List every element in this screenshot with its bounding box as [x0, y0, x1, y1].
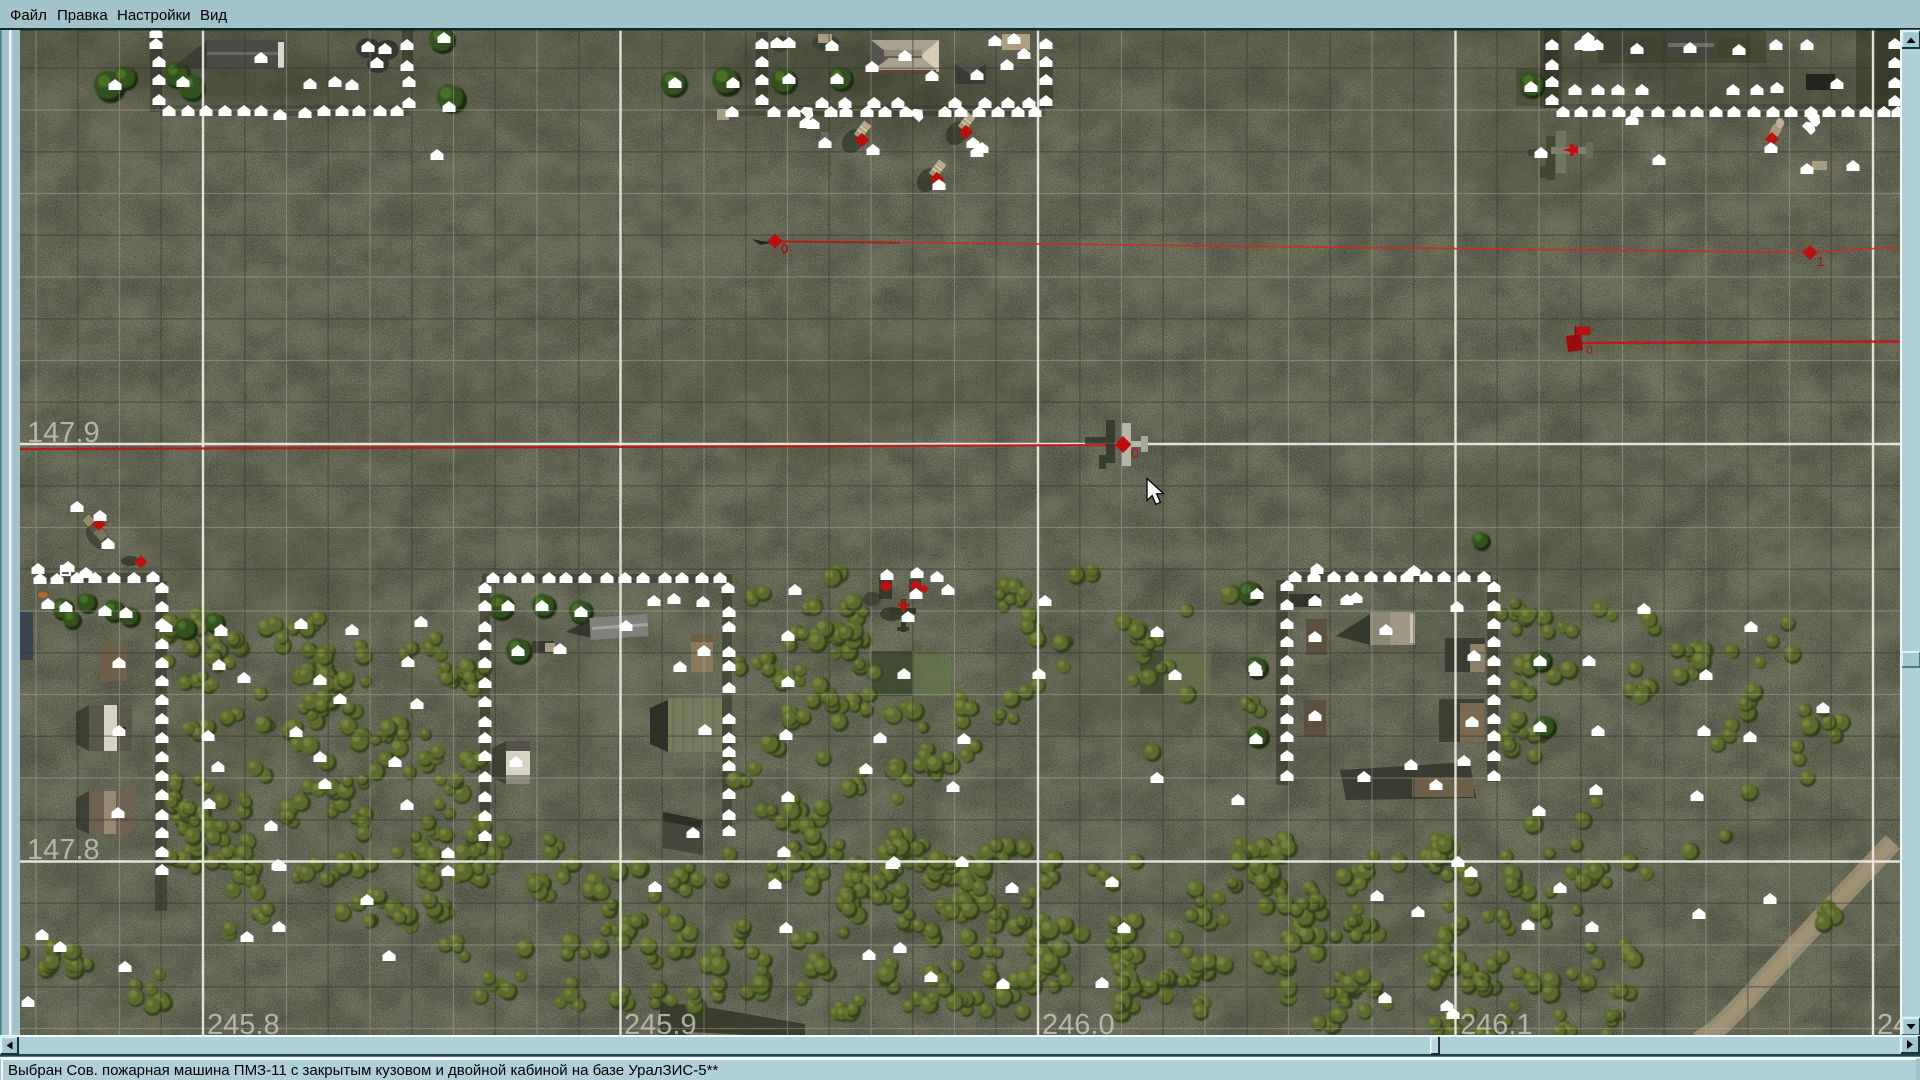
- svg-text:0: 0: [1131, 445, 1139, 461]
- svg-text:Настройки: Настройки: [117, 7, 191, 24]
- svg-text:Правка: Правка: [57, 7, 108, 24]
- svg-text:Выбран Сов. пожарная машина ПМ: Выбран Сов. пожарная машина ПМЗ-11 с зак…: [8, 1062, 718, 1079]
- svg-text:0: 0: [1586, 343, 1593, 357]
- svg-text:147.8: 147.8: [27, 834, 100, 866]
- svg-text:147.9: 147.9: [27, 417, 100, 449]
- svg-text:Вид: Вид: [200, 7, 227, 24]
- svg-text:Файл: Файл: [10, 7, 47, 24]
- svg-text:1: 1: [1817, 254, 1824, 269]
- svg-text:0: 0: [781, 241, 788, 256]
